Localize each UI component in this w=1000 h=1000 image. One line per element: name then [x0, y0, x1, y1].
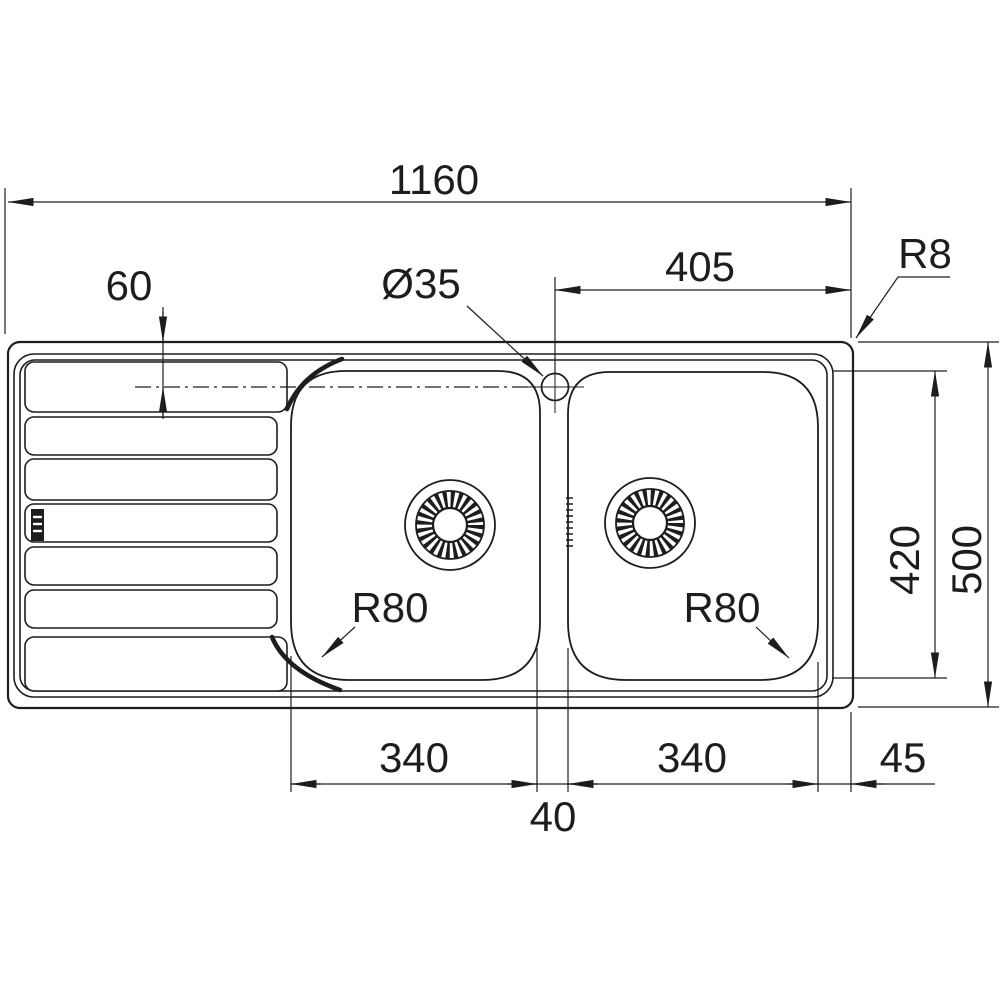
dim-label-right-bowl-radius: R80: [683, 584, 760, 631]
sink-technical-drawing: 1160 405 R8 60 Ø35 420 500 R80 R80 340 3…: [0, 0, 1000, 1000]
dim-label-left-bowl-radius: R80: [351, 584, 428, 631]
dim-label-left-bowl-width: 340: [379, 734, 449, 781]
drainer-slat: [25, 637, 287, 691]
dim-label-edge-offset: 60: [106, 262, 153, 309]
drainer-slat: [25, 504, 277, 542]
dim-label-bowl-gap: 40: [530, 793, 577, 840]
drainer-slat: [25, 417, 277, 455]
dim-label-tap-hole-diameter: Ø35: [381, 260, 460, 307]
dim-label-rim-radius: R8: [898, 230, 952, 277]
drainer-slat: [25, 547, 277, 585]
dim-label-overall-depth: 500: [943, 525, 990, 595]
leader-rim-radius: [856, 277, 950, 338]
brand-logo: [31, 509, 44, 541]
drainer-slat: [25, 590, 277, 628]
dim-label-right-margin: 45: [880, 734, 927, 781]
dim-label-overall-width: 1160: [389, 156, 479, 203]
dim-label-bowl-length: 420: [881, 525, 928, 595]
sink-body: [8, 342, 853, 708]
dim-label-tap-to-edge: 405: [665, 243, 735, 290]
dim-label-right-bowl-width: 340: [657, 734, 727, 781]
drawing-svg: 1160 405 R8 60 Ø35 420 500 R80 R80 340 3…: [0, 0, 1000, 1000]
drainer-slat: [25, 459, 277, 500]
